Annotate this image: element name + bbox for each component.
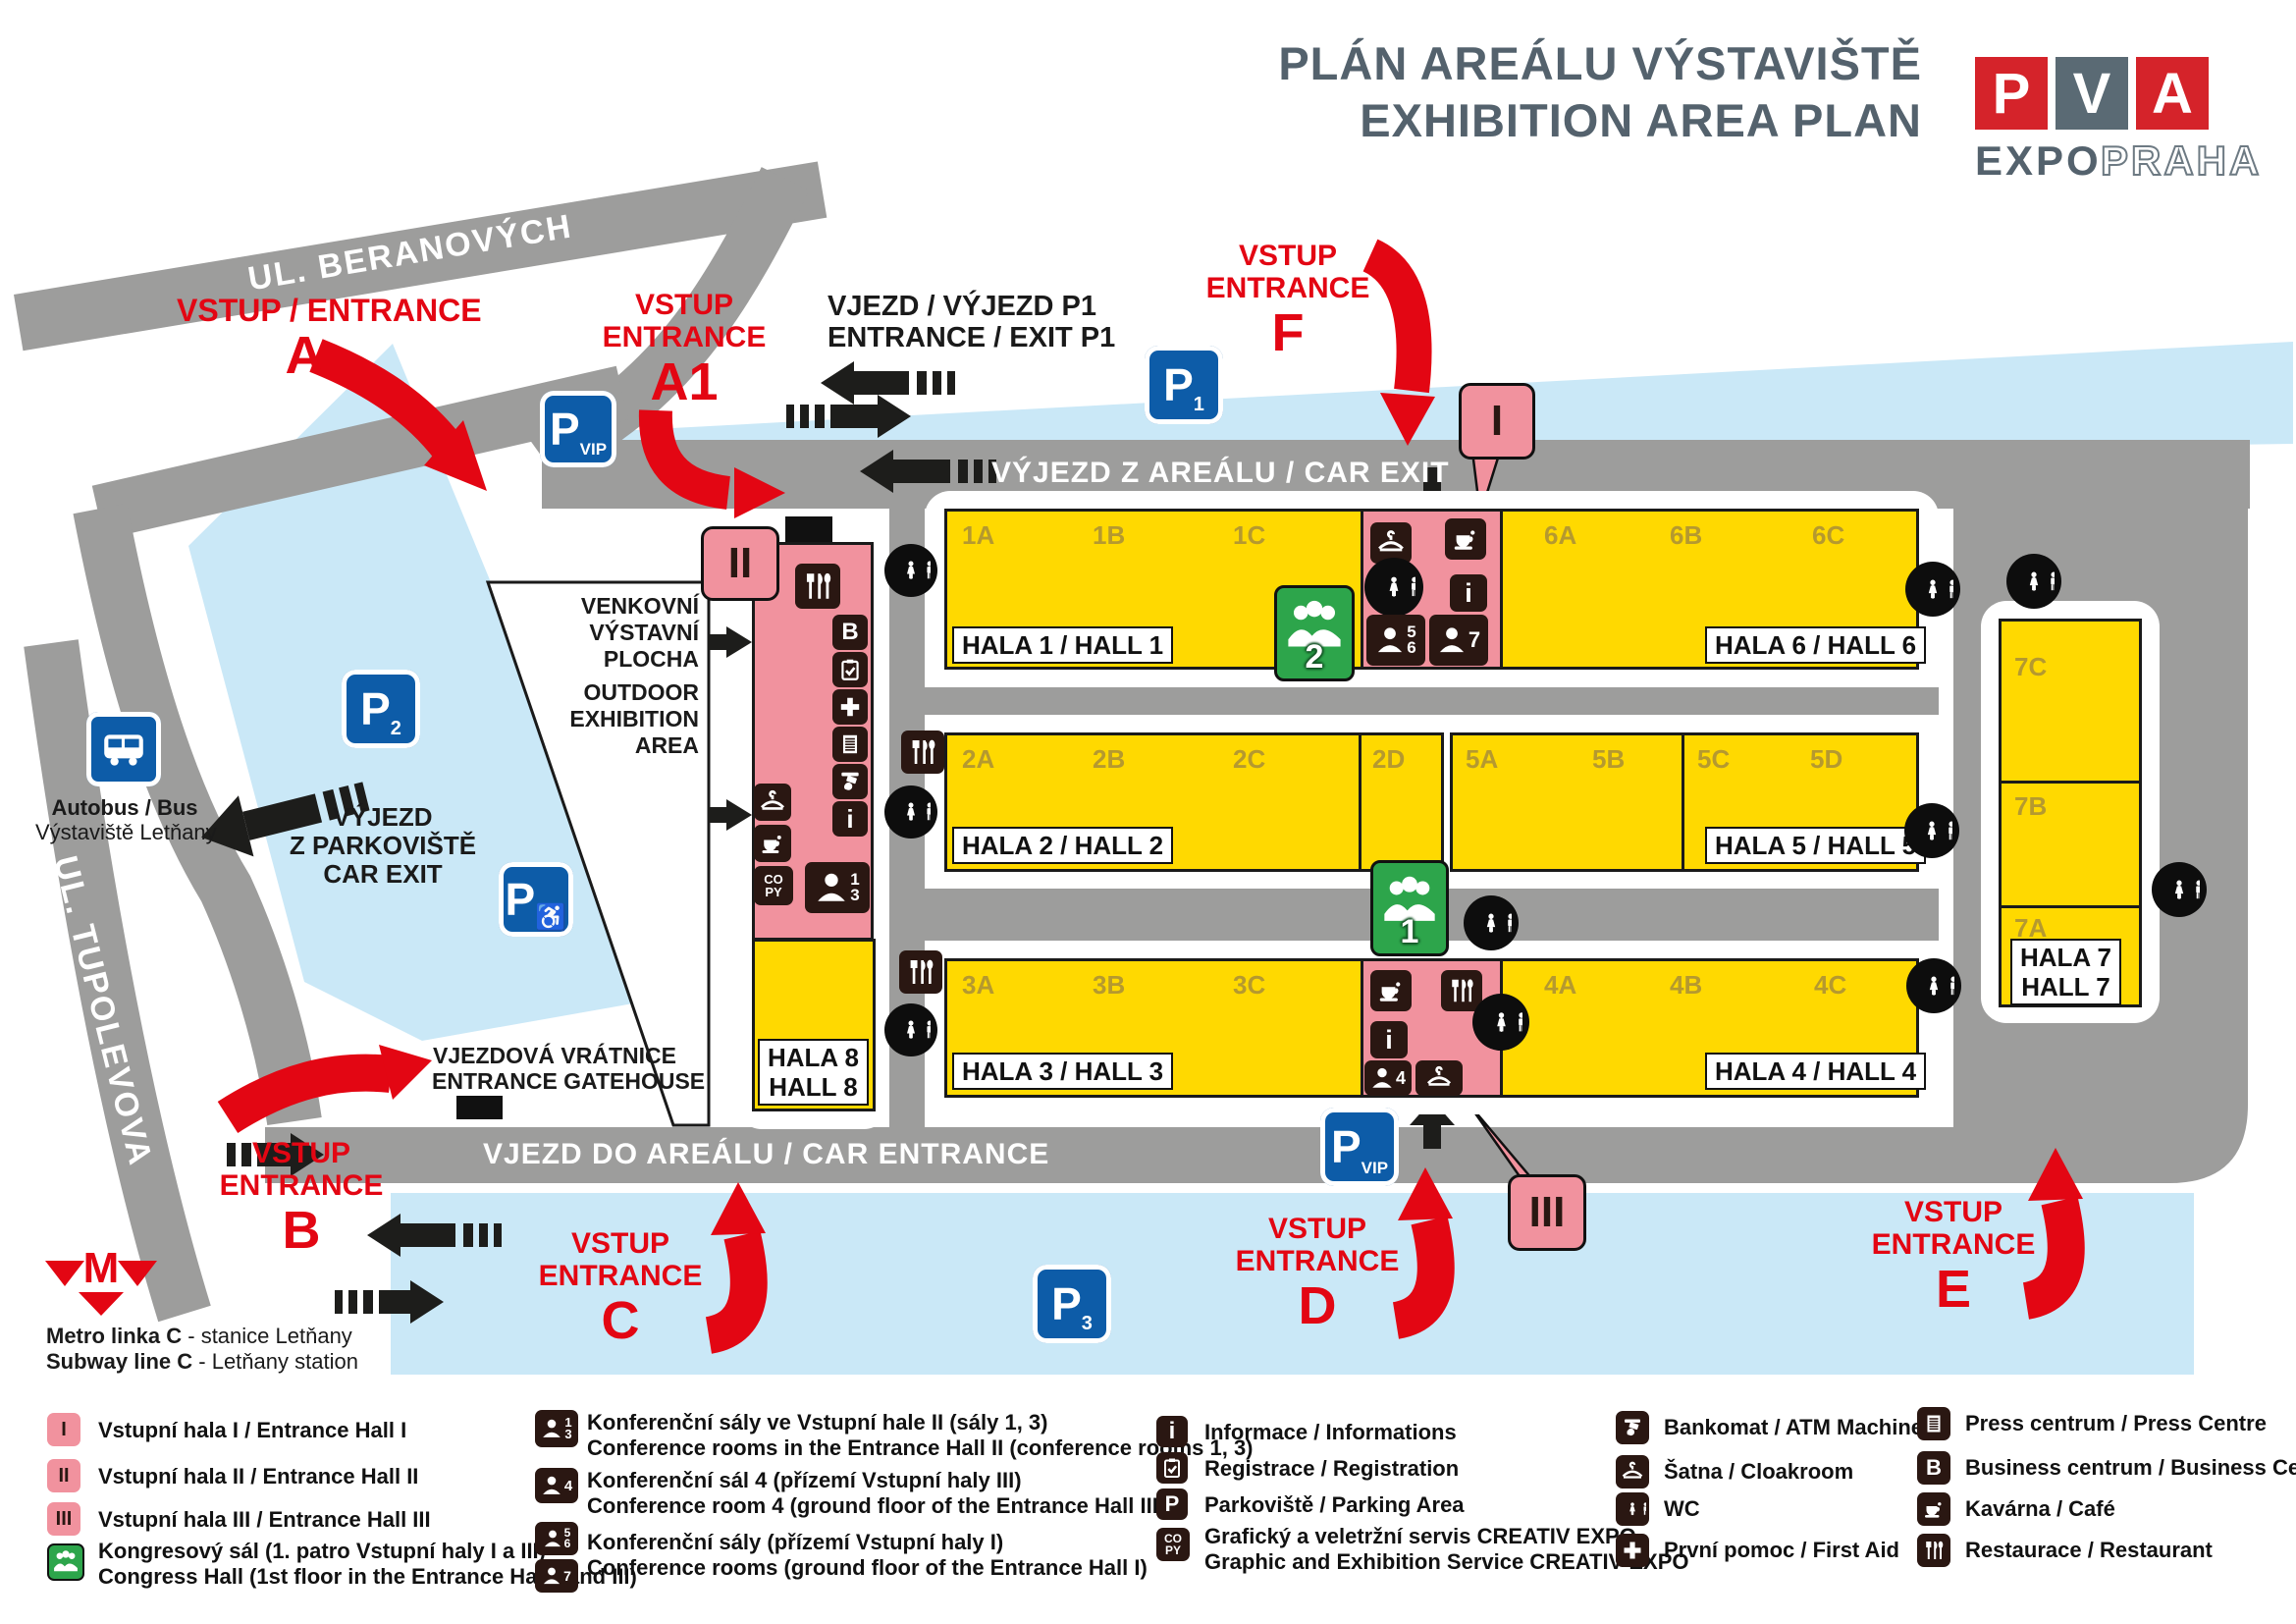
legend-congress-hall-icon	[47, 1543, 84, 1581]
section-2a: 2A	[962, 744, 994, 775]
entrance-c-label: VSTUPENTRANCE C	[522, 1227, 719, 1347]
legend-press-text: Press centrum / Press Centre	[1965, 1411, 2267, 1436]
section-7b: 7B	[2014, 791, 2047, 822]
cafe-icon	[1917, 1492, 1950, 1526]
cafe-icon	[1445, 518, 1486, 560]
gatehouse-label: VJEZDOVÁ VRÁTNICEENTRANCE GATEHOUSE	[432, 1043, 677, 1094]
legend-conference-13-text: Konferenční sály ve Vstupní hale II (sál…	[587, 1410, 1254, 1461]
page-title: PLÁN AREÁLU VÝSTAVIŠTĚ EXHIBITION AREA P…	[1278, 35, 1922, 149]
atm-icon	[832, 764, 868, 799]
hall8-label: HALA 8 HALL 8	[758, 1039, 869, 1106]
cloakroom-icon	[1415, 1060, 1463, 1096]
section-2b: 2B	[1093, 744, 1125, 775]
restaurant-icon	[795, 564, 840, 609]
hall7-label: HALA 7 HALL 7	[2010, 939, 2121, 1005]
entrance-b-label: VSTUPENTRANCE B	[203, 1137, 400, 1257]
section-2d: 2D	[1372, 744, 1405, 775]
parking-exit-label: VÝJEZDZ PARKOVIŠTĚCAR EXIT	[285, 803, 481, 889]
entrance-hall2-callout: II	[701, 526, 779, 601]
arrow-left-icon	[821, 361, 854, 405]
legend-entrance-hall1-text: Vstupní hala I / Entrance Hall I	[98, 1418, 406, 1443]
legend-conference-4-text: Konferenční sál 4 (přízemí Vstupní haly …	[587, 1468, 1165, 1519]
building-mark-hall2	[785, 516, 832, 542]
section-3a: 3A	[962, 970, 994, 1001]
hall5-divider	[1682, 735, 1684, 869]
first-aid-icon	[1616, 1534, 1649, 1567]
hall2-label: HALA 2 / HALL 2	[952, 827, 1173, 864]
entrance-d-label: VSTUPENTRANCE D	[1219, 1213, 1415, 1332]
business-centre-icon: B	[832, 615, 868, 650]
entrance-hall3-callout: III	[1508, 1174, 1586, 1251]
parking-sign-p3: P3	[1033, 1265, 1111, 1343]
cloakroom-icon	[754, 784, 791, 821]
entrance-hall1-callout: I	[1459, 383, 1535, 460]
hall8-label-line1: HALA 8	[768, 1043, 859, 1072]
section-3b: 3B	[1093, 970, 1125, 1001]
wc-icon	[884, 544, 937, 597]
hall7-label-line1: HALA 7	[2020, 943, 2111, 972]
hall6-label: HALA 6 / HALL 6	[1705, 626, 1926, 664]
hall7-divider-1	[2002, 781, 2139, 784]
gatehouse-building	[456, 1096, 503, 1119]
legend-conference-13-icon: 13	[535, 1410, 578, 1447]
legend-restaurant-text: Restaurace / Restaurant	[1965, 1538, 2213, 1563]
section-3c: 3C	[1233, 970, 1265, 1001]
conference-room-7-icon: 7	[1429, 615, 1488, 666]
p1-gate-line1: VJEZD / VÝJEZD P1	[828, 291, 1115, 322]
legend-business-text: Business centrum / Business Centre	[1965, 1455, 2296, 1481]
section-5d: 5D	[1810, 744, 1842, 775]
section-4b: 4B	[1670, 970, 1702, 1001]
wc-icon	[2152, 862, 2207, 917]
logo-a-square: A	[2136, 57, 2209, 130]
first-aid-icon	[832, 689, 868, 725]
wc-icon	[1364, 558, 1423, 617]
legend-entrance-hall2-icon: II	[47, 1459, 80, 1492]
restaurant-icon	[899, 950, 942, 994]
arrow-into-hall2-bottom	[709, 799, 752, 831]
wc-icon	[1905, 562, 1960, 617]
legend-entrance-hall3-text: Vstupní hala III / Entrance Hall III	[98, 1507, 431, 1533]
wc-icon	[884, 1003, 937, 1056]
section-5b: 5B	[1592, 744, 1625, 775]
hall7-divider-2	[2002, 905, 2139, 908]
exhibition-area-plan: UL. BERANOVÝCH UL. TUPOLEVOVA PLÁN AREÁL…	[0, 0, 2296, 1624]
registration-icon	[1156, 1452, 1188, 1484]
hall7-label-line2: HALL 7	[2020, 972, 2111, 1001]
hall3-label: HALA 3 / HALL 3	[952, 1053, 1173, 1090]
road-row-gap-1	[925, 687, 1939, 715]
restaurant-icon	[1917, 1534, 1950, 1567]
hall2-divider	[1359, 735, 1362, 869]
parking-sign-disabled: P ♿	[499, 862, 573, 937]
section-1c: 1C	[1233, 520, 1265, 551]
bus-icon	[99, 725, 148, 774]
legend-entrance-hall3-icon: III	[47, 1502, 80, 1536]
bus-stop-sign	[86, 712, 161, 786]
hall8-label-line2: HALL 8	[768, 1072, 859, 1102]
section-1a: 1A	[962, 520, 994, 551]
metro-m-letter: M	[45, 1247, 157, 1290]
legend-entrance-hall1-icon: I	[47, 1413, 80, 1446]
information-icon: i	[832, 801, 868, 837]
legend-parking-text: Parkoviště / Parking Area	[1204, 1492, 1465, 1518]
information-icon: i	[1156, 1416, 1188, 1447]
cafe-icon	[1370, 970, 1412, 1011]
legend-conference-7-icon: 7	[535, 1559, 578, 1593]
press-centre-icon	[1917, 1407, 1950, 1440]
legend-conference-4-icon: 4	[535, 1468, 578, 1503]
information-icon: i	[1450, 574, 1487, 612]
section-6c: 6C	[1812, 520, 1844, 551]
legend-atm-text: Bankomat / ATM Machine	[1664, 1415, 1923, 1440]
title-line-cz: PLÁN AREÁLU VÝSTAVIŠTĚ	[1278, 35, 1922, 92]
arrow-into-hall2-top	[709, 626, 752, 658]
wc-icon	[1464, 895, 1519, 950]
parking-sign-vip-bottom: PVIP	[1320, 1108, 1399, 1186]
press-centre-icon	[832, 727, 868, 762]
wc-icon	[1616, 1492, 1649, 1526]
p1-gate-line2: ENTRANCE / EXIT P1	[828, 322, 1115, 353]
congress-hall-2-icon: 2	[1274, 585, 1355, 681]
conference-rooms-5-6-icon: 56	[1366, 615, 1425, 666]
section-2c: 2C	[1233, 744, 1265, 775]
legend-cloakroom-text: Šatna / Cloakroom	[1664, 1459, 1853, 1485]
legend-registration-text: Registrace / Registration	[1204, 1456, 1459, 1482]
conference-rooms-1-3-icon: 13	[805, 862, 870, 913]
registration-icon	[832, 652, 868, 687]
copy-centre-icon: COPY	[1156, 1528, 1190, 1561]
section-5a: 5A	[1466, 744, 1498, 775]
section-4c: 4C	[1814, 970, 1846, 1001]
bus-label-line2: Výstaviště Letňany	[35, 820, 214, 844]
logo-v-square: V	[2056, 57, 2128, 130]
outdoor-area-label-cz: VENKOVNÍVÝSTAVNÍPLOCHA	[530, 593, 699, 673]
metro-logo: M	[45, 1247, 157, 1316]
entrance-f-label: VSTUPENTRANCE F	[1190, 240, 1386, 359]
logo-p-square: P	[1975, 57, 2048, 130]
legend-cafe-text: Kavárna / Café	[1965, 1496, 2115, 1522]
copy-centre-icon: COPY	[754, 866, 793, 905]
cafe-icon	[754, 825, 791, 862]
title-line-en: EXHIBITION AREA PLAN	[1278, 92, 1922, 149]
metro-line2-bold: Subway line C	[46, 1349, 192, 1374]
restaurant-icon	[901, 731, 944, 774]
wheelchair-icon: ♿	[535, 902, 566, 933]
wc-icon	[884, 785, 937, 839]
parking-icon: P	[1156, 1489, 1188, 1520]
bus-label-line1: Autobus / Bus	[35, 795, 214, 820]
business-centre-icon: B	[1917, 1451, 1950, 1485]
section-6a: 6A	[1544, 520, 1576, 551]
restaurant-icon	[1441, 970, 1482, 1011]
entrance-a-label: VSTUP / ENTRANCE A	[177, 295, 432, 382]
section-4a: 4A	[1544, 970, 1576, 1001]
conference-room-4-icon: 4	[1364, 1060, 1412, 1096]
legend-wc-text: WC	[1664, 1496, 1700, 1522]
metro-line1-rest: - stanice Letňany	[182, 1324, 352, 1348]
information-icon: i	[1370, 1021, 1408, 1058]
metro-line1-bold: Metro linka C	[46, 1324, 182, 1348]
section-1b: 1B	[1093, 520, 1125, 551]
p1-gate-label: VJEZD / VÝJEZD P1 ENTRANCE / EXIT P1	[828, 291, 1115, 353]
section-7c: 7C	[2014, 652, 2047, 682]
entrance-a1-label: VSTUPENTRANCE A1	[586, 289, 782, 408]
section-5c: 5C	[1697, 744, 1730, 775]
logo-praha-text: PRAHA	[2101, 137, 2262, 185]
hall4-label: HALA 4 / HALL 4	[1705, 1053, 1926, 1090]
legend-conference-56-icon: 56	[535, 1522, 578, 1555]
hall1-label: HALA 1 / HALL 1	[952, 626, 1173, 664]
metro-line2-rest: - Letňany station	[192, 1349, 358, 1374]
wc-icon	[1904, 803, 1959, 858]
metro-label: Metro linka C - stanice Letňany Subway l…	[46, 1324, 358, 1375]
atm-icon	[1616, 1411, 1649, 1444]
legend-entrance-hall2-text: Vstupní hala II / Entrance Hall II	[98, 1464, 418, 1489]
hall5-label: HALA 5 / HALL 5	[1705, 827, 1926, 864]
outdoor-area-label-en: OUTDOOREXHIBITIONAREA	[530, 679, 699, 759]
wc-icon	[2006, 554, 2061, 609]
car-exit-road-label: VÝJEZD Z AREÁLU / CAR EXIT	[991, 457, 1450, 490]
wc-icon	[1906, 958, 1961, 1013]
section-6b: 6B	[1670, 520, 1702, 551]
parking-sign-p2: P2	[342, 670, 420, 748]
cloakroom-icon	[1616, 1455, 1649, 1489]
logo-expo-text: EXPO	[1975, 137, 2102, 185]
car-entrance-road-label: VJEZD DO AREÁLU / CAR ENTRANCE	[483, 1138, 1049, 1171]
legend-first-aid-text: První pomoc / First Aid	[1664, 1538, 1899, 1563]
legend-information-text: Informace / Informations	[1204, 1420, 1457, 1445]
bus-stop-label: Autobus / Bus Výstaviště Letňany	[35, 795, 214, 844]
wc-icon	[1472, 994, 1529, 1051]
entrance-e-label: VSTUPENTRANCE E	[1855, 1196, 2052, 1316]
legend-conference-56-7-text: Konferenční sály (přízemí Vstupní haly I…	[587, 1530, 1148, 1581]
congress-hall-1-icon: 1	[1370, 860, 1449, 956]
